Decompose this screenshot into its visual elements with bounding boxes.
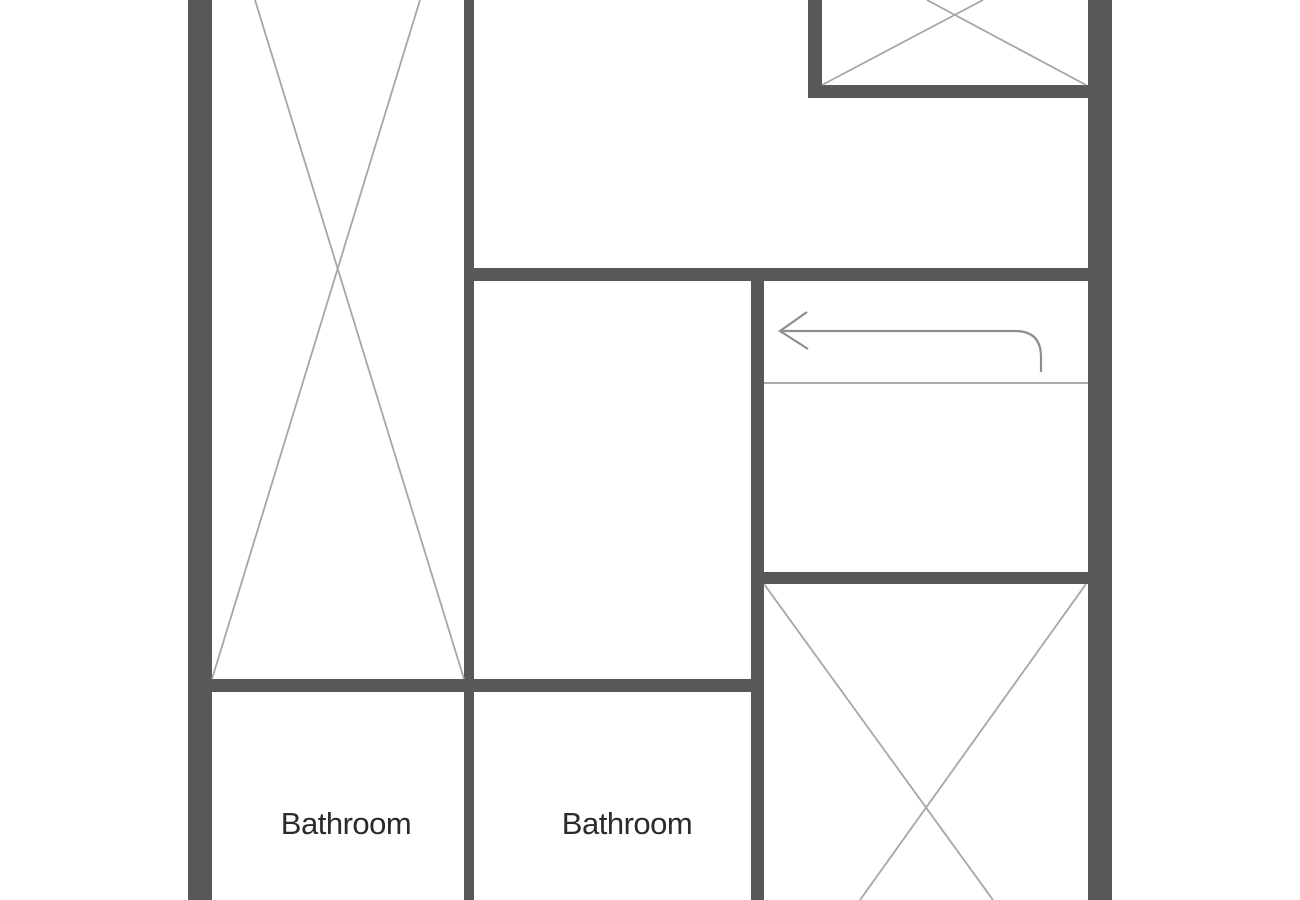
floor-plan-drawing: Bathroom Bathroom	[0, 0, 1300, 900]
room-bottom-right-x-line-2	[860, 584, 1086, 900]
upper-horizontal-wall	[464, 268, 1088, 281]
closet-left-x-line-2	[212, 0, 420, 679]
room-label-bathroom-1: Bathroom	[281, 806, 411, 841]
walls-layer	[188, 0, 1112, 900]
lower-right-horizontal-wall	[751, 572, 1088, 584]
top-right-room-bottom-wall	[808, 85, 1088, 98]
stairs-layer	[764, 312, 1088, 383]
fixture-lines-layer	[212, 0, 1086, 900]
closet-top-right-x-line-2	[927, 0, 1086, 85]
lower-left-horizontal-wall	[188, 679, 764, 692]
floor-plan-page: Bathroom Bathroom	[0, 0, 1300, 900]
closet-top-right-x-line-1	[822, 0, 983, 85]
outer-wall-right	[1088, 0, 1112, 900]
stair-direction-arrow-shaft	[780, 331, 1041, 372]
room-label-bathroom-2: Bathroom	[562, 806, 692, 841]
outer-wall-left	[188, 0, 212, 900]
closet-left-x-line-1	[255, 0, 464, 679]
labels-layer: Bathroom Bathroom	[281, 806, 692, 841]
room-bottom-right-x-line-1	[764, 584, 993, 900]
center-vertical-wall	[464, 0, 474, 900]
top-right-room-left-wall	[808, 0, 822, 98]
